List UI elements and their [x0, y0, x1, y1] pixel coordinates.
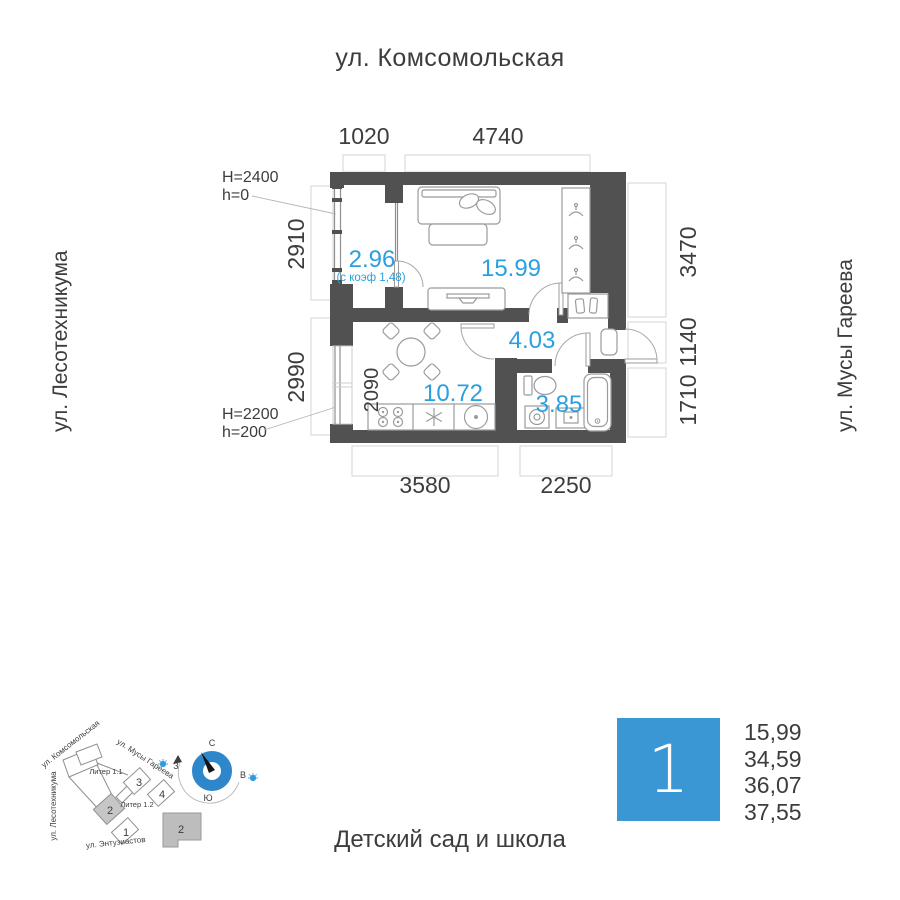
note-bottom-1: H=2200: [222, 406, 279, 423]
chair: [382, 322, 400, 340]
bathtub: [584, 374, 611, 431]
bed-bench: [429, 224, 487, 245]
kitchen-window-sill: [333, 346, 352, 424]
dim-bottom-right: 2250: [540, 472, 591, 498]
site-buildings: 3 4 2 1 Литер 1.1 Литер 1.2: [63, 744, 175, 844]
section-4-label: 4: [159, 789, 165, 801]
section-3-label: 3: [136, 777, 142, 789]
sun-icon: [248, 773, 258, 781]
wardrobe: [562, 188, 590, 293]
compass-east: В: [240, 770, 246, 780]
building-footprint-icon: 2: [163, 813, 201, 847]
height-notes: H=2400 h=0 H=2200 h=200: [222, 169, 336, 441]
site-plan: 3 4 2 1 Литер 1.1 Литер 1.2 ул. Комсомол…: [30, 715, 260, 875]
site-streets: ул. Комсомольская ул. Мусы Гареева ул. Л…: [40, 719, 176, 851]
legend-value: 15,99: [744, 719, 802, 746]
floor-plan: 2.96 (с коэф 1,48) 15.99 4.03 10.72 3.85…: [170, 90, 730, 520]
note-top-2: h=0: [222, 187, 249, 204]
legend-value: 36,07: [744, 772, 802, 799]
dim-right-upper: 3470: [675, 226, 701, 277]
dim-right-lower: 1710: [675, 374, 701, 425]
site-street-lesotehnikuma: ул. Лесотехникума: [49, 771, 58, 841]
bathroom-door: [555, 333, 590, 366]
street-label-left: ул. Лесотехникума: [49, 250, 73, 432]
compass-west: З: [173, 761, 178, 771]
tv-stand: [428, 288, 505, 310]
area-kitchen: 10.72: [423, 380, 483, 407]
entrance-door: [625, 329, 657, 363]
apartment-legend: 1 15,99 34,59 36,07 37,55: [617, 718, 877, 828]
dim-kitchen-inner: 2090: [361, 368, 383, 413]
compass-north: С: [209, 738, 216, 748]
area-living: 15.99: [481, 255, 541, 282]
area-balcony-note: (с коэф 1,48): [336, 272, 405, 284]
site-street-entuziastov: ул. Энтузиастов: [86, 835, 146, 850]
chair: [423, 322, 441, 340]
apartment-number-badge: 1: [617, 718, 720, 821]
compass-south: Ю: [203, 793, 212, 803]
area-balcony: 2.96: [349, 246, 396, 273]
doormat: [601, 329, 617, 355]
area-hall: 4.03: [509, 327, 556, 354]
kitchen-counter: [368, 404, 495, 430]
apartment-areas-list: 15,99 34,59 36,07 37,55: [744, 719, 802, 825]
apartment-number: 1: [648, 737, 690, 803]
legend-value: 34,59: [744, 746, 802, 773]
dim-top-left: 1020: [338, 123, 389, 149]
dim-left-upper: 2910: [283, 218, 309, 269]
area-bath: 3.85: [536, 391, 583, 418]
section-2-label: 2: [107, 805, 113, 817]
footprint-label: 2: [178, 824, 184, 836]
chair: [423, 363, 441, 381]
chair: [382, 363, 400, 381]
dim-top-right: 4740: [472, 123, 523, 149]
street-label-top: ул. Комсомольская: [0, 44, 900, 73]
dim-left-lower: 2990: [283, 351, 309, 402]
street-label-right: ул. Мусы Гареева: [834, 259, 858, 432]
dining-table: [382, 322, 441, 381]
dim-bottom-left: 3580: [399, 472, 450, 498]
legend-value: 37,55: [744, 799, 802, 826]
note-top-1: H=2400: [222, 169, 279, 186]
bed: [418, 187, 500, 245]
shoe-cabinet: [568, 294, 608, 318]
dim-right-mid: 1140: [675, 317, 701, 366]
kitchen-door: [461, 324, 494, 359]
note-bottom-2: h=200: [222, 424, 267, 441]
liter-1-1-label: Литер 1.1: [89, 767, 122, 776]
liter-1-2-label: Литер 1.2: [120, 800, 153, 809]
